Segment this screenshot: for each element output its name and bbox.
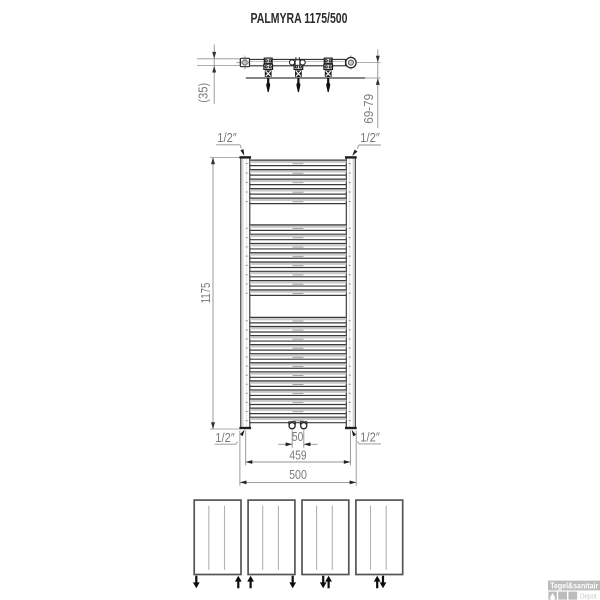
svg-text:PALMYRA 1175/500: PALMYRA 1175/500 (251, 10, 348, 27)
svg-text:Tegel&sanitair: Tegel&sanitair (550, 581, 599, 590)
svg-text:1/2″: 1/2″ (217, 130, 237, 145)
svg-text:69-79: 69-79 (361, 94, 376, 124)
svg-text:500: 500 (289, 467, 307, 482)
svg-text:50: 50 (292, 429, 304, 444)
svg-text:1/2″: 1/2″ (360, 130, 380, 145)
svg-text:(35): (35) (196, 83, 211, 103)
svg-text:1/2″: 1/2″ (360, 430, 380, 445)
svg-text:Depot: Depot (580, 592, 597, 600)
svg-text:1175: 1175 (198, 283, 213, 304)
svg-text:1/2″: 1/2″ (215, 430, 235, 445)
svg-text:459: 459 (289, 448, 306, 463)
